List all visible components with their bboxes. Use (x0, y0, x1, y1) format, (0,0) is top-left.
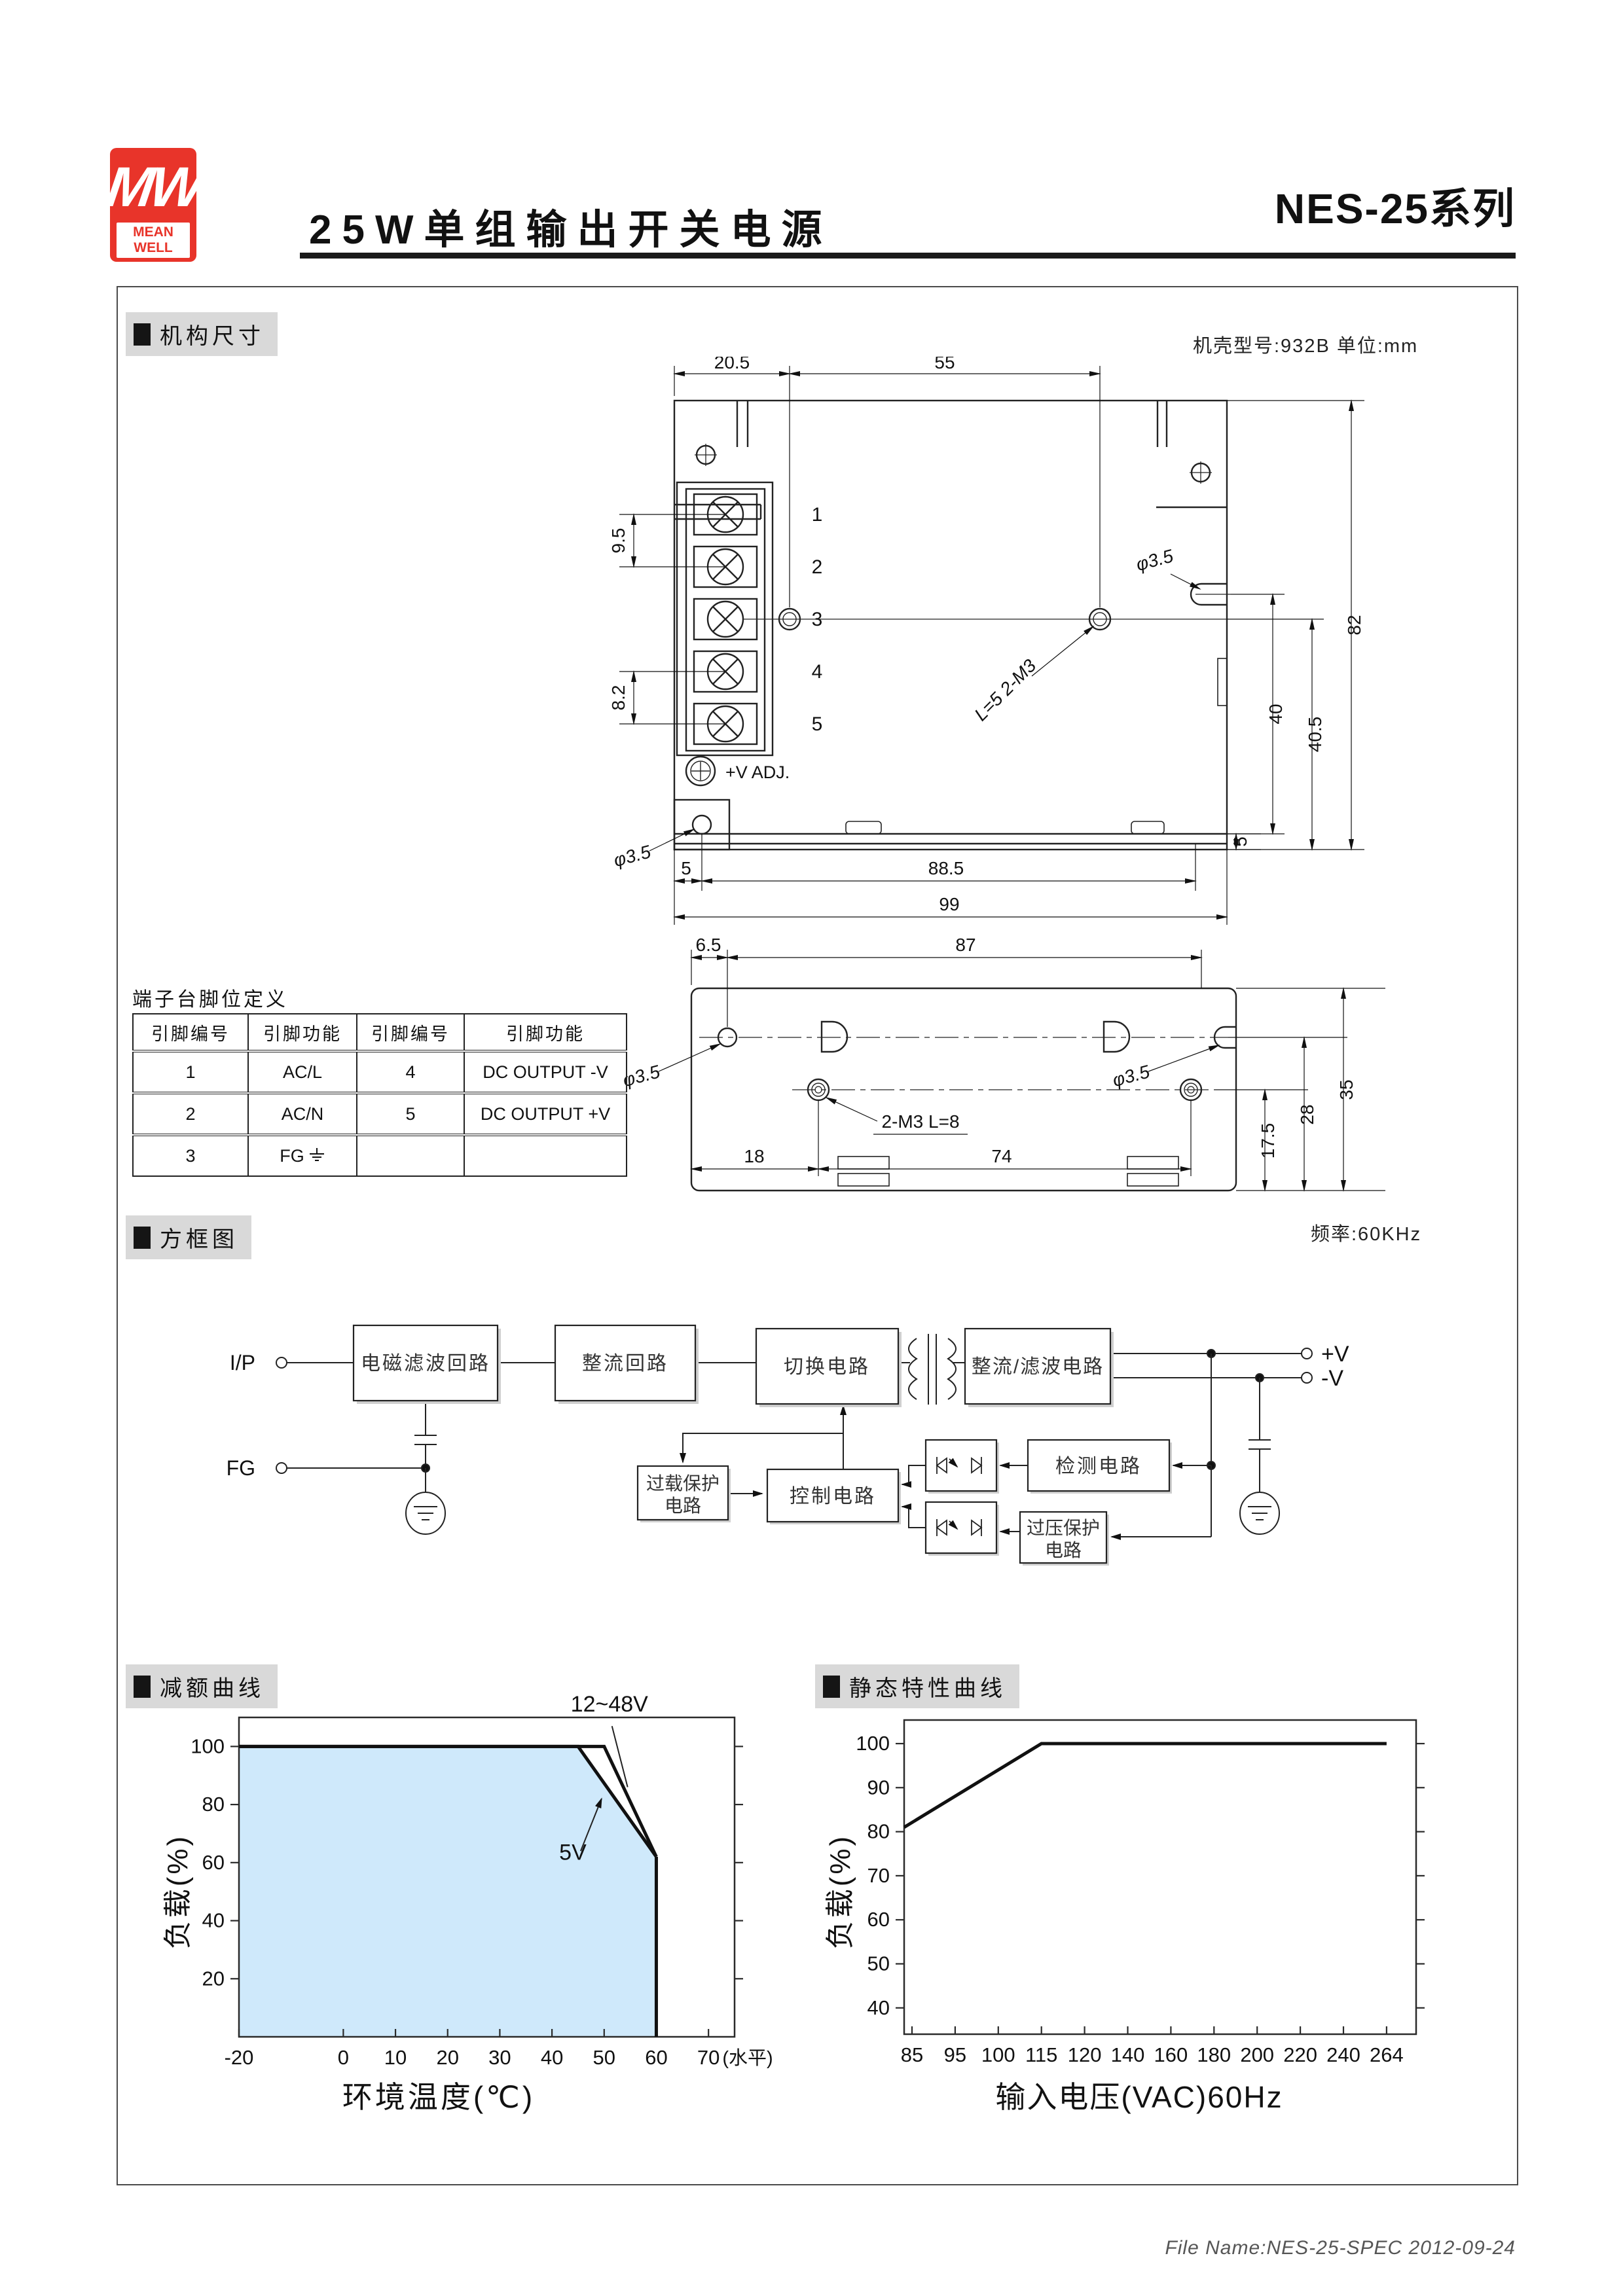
terminal-4: 4 (812, 661, 823, 683)
dim-20-5: 20.5 (714, 357, 750, 372)
section-mechanical: 机构尺寸 (126, 312, 278, 356)
pin-cell: AC/L (248, 1051, 357, 1093)
pin-cell: 4 (357, 1051, 464, 1093)
section-mechanical-label: 机构尺寸 (160, 318, 264, 350)
static-ylabel: 负载(%) (824, 1834, 856, 1949)
x-tick-label: 10 (384, 2046, 407, 2069)
section-bullet-icon (134, 1227, 151, 1249)
ovp-box-label2: 电路 (1045, 1540, 1082, 1560)
dim-40: 40 (1266, 704, 1286, 724)
y-tick-label: 50 (867, 1952, 890, 1975)
bottom-view-labels: 6.5 87 φ3.5 φ3.5 2-M3 L=8 18 74 17.5 28 … (621, 935, 1357, 1166)
static-chart: 负载(%) 输入电压(VAC)60Hz 40506070809010085951… (812, 1676, 1467, 2134)
x-tick-label: 264 (1370, 2043, 1404, 2066)
emi-filter-box-label: 电磁滤波回路 (361, 1353, 490, 1374)
rectifier-box-label: 整流回路 (582, 1353, 668, 1374)
annotation-5V: 5V (559, 1840, 587, 1865)
fg-label: FG (227, 1456, 255, 1480)
derating-xlabel: 环境温度(℃) (342, 2080, 535, 2114)
x-tick-label: 30 (488, 2046, 511, 2069)
derating-chart: 负载(%) 环境温度(℃) 20406080100-20010203040506… (164, 1676, 786, 2134)
phi35-callout-right: φ3.5 (1110, 1061, 1152, 1090)
dim-6-5: 6.5 (696, 935, 721, 955)
block-diagram: I/P FG 电磁滤波回路 整流回路 切换电路 整流/滤波电路 +V -V 过载… (164, 1276, 1408, 1590)
x-tick-label: 50 (593, 2046, 615, 2069)
pin-cell: 3 (133, 1135, 248, 1176)
y-tick-label: 20 (202, 1967, 225, 1990)
dim-74: 74 (991, 1146, 1012, 1166)
pin-table-header: 引脚编号 (357, 1014, 464, 1051)
derating-ylabel: 负载(%) (164, 1834, 194, 1949)
terminal-3: 3 (812, 609, 823, 630)
series-load (904, 1744, 1387, 1827)
datasheet-page: MW MEAN WELL 25W单组输出开关电源 NES-25系列 机构尺寸 机… (0, 0, 1623, 2296)
page-title: 25W单组输出开关电源 (309, 196, 832, 255)
x-tick-label: 40 (541, 2046, 563, 2069)
y-tick-label: 80 (202, 1793, 225, 1816)
logo-brand-text: MEAN WELL (117, 223, 190, 258)
file-note: File Name:NES-25-SPEC 2012-09-24 (1165, 2237, 1516, 2259)
static-xlabel: 输入电压(VAC)60Hz (995, 2080, 1283, 2114)
dim-99: 99 (939, 894, 959, 914)
section-block-diagram: 方框图 (126, 1215, 251, 1259)
olp-box-label2: 电路 (665, 1496, 701, 1516)
terminal-5: 5 (812, 713, 823, 735)
phi35-callout-top: φ3.5 (1134, 545, 1176, 575)
dim-18: 18 (744, 1146, 764, 1166)
out-rectifier-box-label: 整流/滤波电路 (972, 1356, 1104, 1378)
olp-box-label: 过载保护 (646, 1473, 720, 1494)
y-tick-label: 100 (856, 1732, 890, 1755)
x-tick-label: 240 (1326, 2043, 1360, 2066)
pin-cell (357, 1135, 464, 1176)
pin-table-header: 引脚功能 (248, 1014, 357, 1051)
detect-box-label: 检测电路 (1055, 1456, 1142, 1477)
pin-table: 引脚编号 引脚功能 引脚编号 引脚功能 1 AC/L 4 DC OUTPUT -… (132, 1013, 627, 1177)
dim-87: 87 (955, 935, 976, 955)
m3-l8-callout: 2-M3 L=8 (881, 1111, 959, 1132)
vminus-label: -V (1321, 1366, 1343, 1391)
section-block-label: 方框图 (160, 1221, 238, 1253)
front-view-labels: 20.5 55 9.5 8.2 1 2 3 4 5 φ3.5 φ3.5 L=5 … (609, 357, 1364, 914)
annotation-12~48V: 12~48V (571, 1692, 648, 1717)
section-bullet-icon (134, 1676, 151, 1698)
pin-cell-fg: FG (248, 1135, 357, 1176)
pin-cell: DC OUTPUT -V (464, 1051, 627, 1093)
meanwell-logo: MW MEAN WELL (110, 148, 196, 262)
pin-cell (464, 1135, 627, 1176)
pin-cell: AC/N (248, 1093, 357, 1135)
x-tick-label: 180 (1197, 2043, 1231, 2066)
x-tick-label: 120 (1068, 2043, 1102, 2066)
pin-table-header: 引脚功能 (464, 1014, 627, 1051)
y-tick-label: 80 (867, 1820, 890, 1843)
x-tick-label: 85 (901, 2043, 923, 2066)
x-tick-label: 140 (1111, 2043, 1145, 2066)
title-divider (300, 253, 1516, 259)
dim-5-right: 5 (1230, 836, 1250, 847)
earth-ground-icon (308, 1147, 325, 1163)
series-title: NES-25系列 (1275, 175, 1516, 236)
dim-8-2: 8.2 (609, 685, 629, 711)
dim-9-5: 9.5 (609, 528, 629, 554)
logo-mw-icon: MW (102, 152, 204, 223)
pin-table-title: 端子台脚位定义 (132, 983, 288, 1012)
pin-cell: DC OUTPUT +V (464, 1093, 627, 1135)
derating-fill-area (239, 1746, 656, 2037)
y-tick-label: 40 (867, 1996, 890, 2019)
x-tick-label: 0 (338, 2046, 349, 2069)
table-row: 3 FG (133, 1135, 627, 1176)
vadj-label: +V ADJ. (725, 762, 790, 782)
x-tick-label: 60 (645, 2046, 667, 2069)
x-tick-label: 220 (1283, 2043, 1317, 2066)
table-row: 1 AC/L 4 DC OUTPUT -V (133, 1051, 627, 1093)
dim-40-5: 40.5 (1305, 717, 1325, 753)
x-tick-label: 200 (1240, 2043, 1274, 2066)
y-tick-label: 60 (867, 1908, 890, 1931)
table-row: 2 AC/N 5 DC OUTPUT +V (133, 1093, 627, 1135)
phi35-callout-bottom: φ3.5 (611, 841, 653, 870)
front-view-dimensions (619, 366, 1364, 925)
ip-label: I/P (230, 1351, 255, 1374)
y-tick-label: 70 (867, 1864, 890, 1887)
x-tick-label: 95 (944, 2043, 966, 2066)
freq-note: 频率:60KHz (1311, 1219, 1421, 1246)
dim-28: 28 (1297, 1104, 1317, 1124)
x-tick-label: 100 (981, 2043, 1015, 2066)
case-note: 机壳型号:932B 单位:mm (1193, 331, 1418, 358)
bottom-view (691, 988, 1236, 1191)
x-axis-end-label: (水平) (722, 2047, 773, 2069)
y-tick-label: 100 (191, 1734, 225, 1757)
pin-cell: 2 (133, 1093, 248, 1135)
dim-55: 55 (934, 357, 955, 372)
dim-35: 35 (1336, 1079, 1357, 1100)
terminal-2: 2 (812, 556, 823, 578)
dim-82: 82 (1344, 615, 1364, 635)
pin-cell: 1 (133, 1051, 248, 1093)
dim-17-5: 17.5 (1258, 1123, 1278, 1159)
x-tick-label: -20 (225, 2046, 254, 2069)
x-tick-label: 70 (697, 2046, 720, 2069)
control-box-label: 控制电路 (790, 1486, 876, 1507)
y-tick-label: 60 (202, 1851, 225, 1874)
section-bullet-icon (134, 323, 151, 346)
dim-88-5: 88.5 (928, 858, 964, 878)
terminal-1: 1 (812, 504, 823, 526)
pin-table-header: 引脚编号 (133, 1014, 248, 1051)
y-tick-label: 40 (202, 1909, 225, 1932)
pin-cell: 5 (357, 1093, 464, 1135)
x-tick-label: 160 (1154, 2043, 1188, 2066)
mechanical-drawing: 20.5 55 9.5 8.2 1 2 3 4 5 φ3.5 φ3.5 L=5 … (609, 357, 1395, 1208)
front-view (674, 401, 1231, 850)
dim-5-bottom: 5 (681, 858, 691, 878)
m3-callout: L=5 2-M3 (970, 655, 1040, 725)
x-tick-label: 115 (1025, 2043, 1057, 2066)
vplus-label: +V (1321, 1342, 1349, 1367)
ovp-box-label: 过压保护 (1027, 1518, 1100, 1538)
y-tick-label: 90 (867, 1776, 890, 1799)
switching-box-label: 切换电路 (784, 1356, 870, 1378)
x-tick-label: 20 (436, 2046, 458, 2069)
